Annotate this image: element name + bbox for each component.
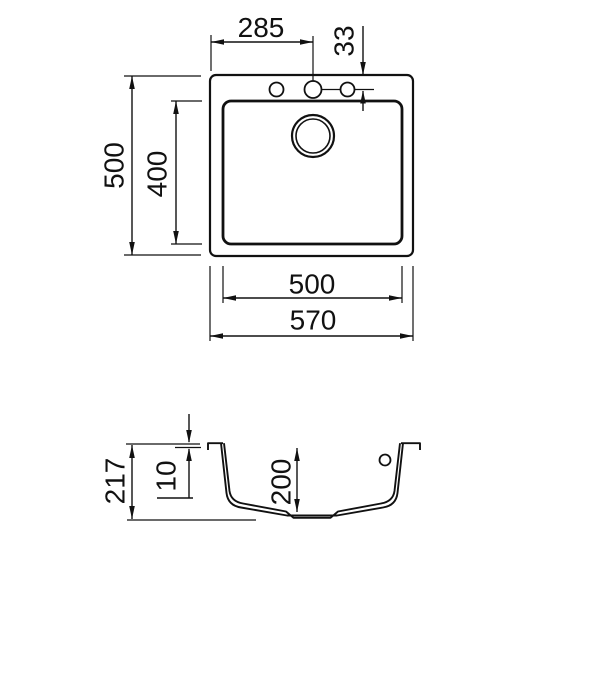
arrowhead — [389, 295, 402, 301]
arrowhead — [129, 76, 135, 89]
rim-right — [401, 443, 420, 450]
dim-33-label: 33 — [329, 25, 360, 56]
dim-500-left-label: 500 — [99, 142, 130, 189]
side-view: 217 10 200 — [100, 414, 421, 520]
dim-400-label: 400 — [142, 151, 173, 198]
dim-217-label: 217 — [100, 458, 131, 505]
section-inner-surface — [224, 443, 400, 518]
faucet-hole-left — [270, 83, 284, 97]
overflow-hole — [380, 455, 391, 466]
arrowhead — [186, 448, 192, 461]
arrowhead — [211, 39, 224, 45]
arrowhead — [173, 101, 179, 114]
dim-10-label: 10 — [151, 460, 182, 491]
dim-200-label: 200 — [266, 459, 297, 506]
sink-technical-drawing: 285 33 500 400 500 570 — [0, 0, 600, 689]
drain-outer-circle — [292, 115, 334, 157]
dim-500-bottom-label: 500 — [289, 269, 336, 300]
arrowhead — [223, 295, 236, 301]
arrowhead — [300, 39, 313, 45]
arrowhead — [400, 333, 413, 339]
arrowhead — [186, 430, 192, 443]
faucet-hole-right — [341, 83, 355, 97]
arrowhead — [360, 62, 366, 75]
arrowhead — [210, 333, 223, 339]
arrowhead — [129, 445, 135, 458]
faucet-hole-center — [305, 81, 322, 98]
top-view: 285 33 500 400 500 570 — [99, 12, 414, 341]
dim-285-label: 285 — [238, 12, 285, 43]
arrowhead — [129, 242, 135, 255]
dim-570-label: 570 — [290, 305, 337, 336]
arrowhead — [129, 506, 135, 519]
arrowhead — [173, 231, 179, 244]
